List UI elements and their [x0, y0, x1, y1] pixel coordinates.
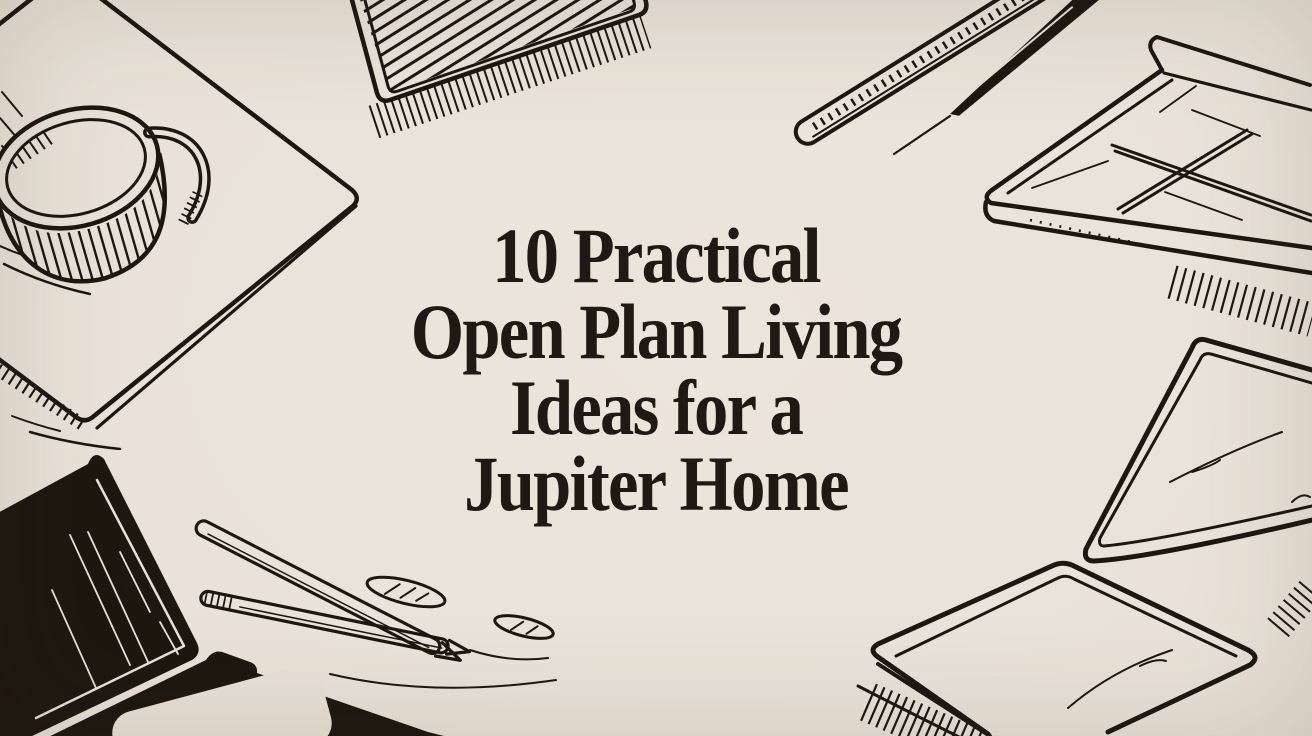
pencils — [194, 518, 471, 667]
title-line-4: Jupiter Home — [79, 446, 1234, 522]
page-title: 10 Practical Open Plan Living Ideas for … — [79, 218, 1234, 522]
title-line-1: 10 Practical — [79, 218, 1234, 294]
hatched-notebook-illustration — [300, 0, 670, 160]
pebble-ovals — [364, 571, 555, 643]
title-line-2: Open Plan Living — [79, 294, 1234, 370]
blog-hero-banner: 10 Practical Open Plan Living Ideas for … — [0, 0, 1312, 736]
title-line-3: Ideas for a — [79, 370, 1234, 446]
